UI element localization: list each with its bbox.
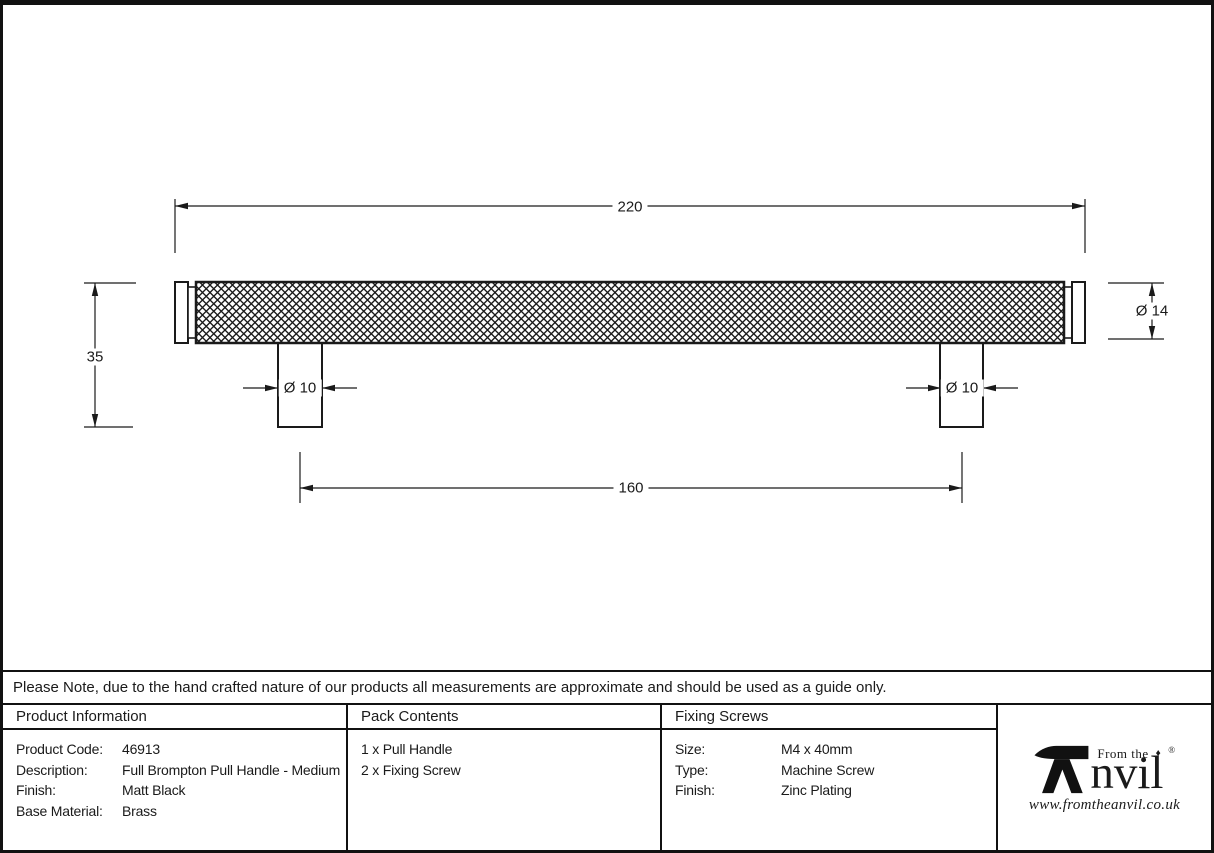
- pack-contents-header: Pack Contents: [348, 705, 662, 730]
- fixing-screws-body: Size: M4 x 40mm Type: Machine Screw Fini…: [662, 730, 998, 850]
- dim-label-projection-height: 35: [82, 349, 109, 366]
- from-the-anvil-logo: From the ♦ ® nvil www.fromtheanvil.co.uk: [1029, 736, 1180, 814]
- logo-wordmark: nvil: [1090, 752, 1163, 796]
- dim-label-bar-diameter: Ø 14: [1131, 303, 1174, 320]
- logo-website: www.fromtheanvil.co.uk: [1029, 797, 1180, 814]
- dimension-lines: [84, 199, 1164, 503]
- product-spec-sheet: 220 35 Ø 14 Ø 10 Ø 10 160 Please Note, d…: [0, 0, 1214, 853]
- table-row: Size: M4 x 40mm: [675, 739, 996, 760]
- technical-drawing: [0, 0, 1214, 672]
- product-information-header: Product Information: [3, 705, 348, 730]
- pull-handle-outline: [175, 282, 1085, 427]
- product-information-body: Product Code: 46913 Description: Full Br…: [3, 730, 348, 850]
- fixing-screws-header: Fixing Screws: [662, 705, 998, 730]
- note-text: Please Note, due to the hand crafted nat…: [13, 679, 887, 696]
- pack-contents-body: 1 x Pull Handle 2 x Fixing Screw: [348, 730, 662, 850]
- brand-logo-cell: From the ♦ ® nvil www.fromtheanvil.co.uk: [998, 705, 1211, 850]
- table-row: Type: Machine Screw: [675, 760, 996, 781]
- table-row: Finish: Matt Black: [16, 780, 346, 801]
- table-row: Product Code: 46913: [16, 739, 346, 760]
- table-row: Finish: Zinc Plating: [675, 780, 996, 801]
- measurement-note: Please Note, due to the hand crafted nat…: [0, 670, 1214, 705]
- knurled-bar: [196, 282, 1064, 343]
- anvil-icon: [1033, 743, 1090, 796]
- list-item: 2 x Fixing Screw: [361, 760, 660, 781]
- table-row: Base Material: Brass: [16, 801, 346, 822]
- dimension-arrowheads: [92, 203, 1155, 491]
- list-item: 1 x Pull Handle: [361, 739, 660, 760]
- spec-table: Product Information Pack Contents Fixing…: [3, 705, 1211, 850]
- left-end-cap: [175, 282, 188, 343]
- dim-label-overall-length: 220: [612, 199, 647, 216]
- registered-mark: ®: [1168, 745, 1175, 755]
- dim-label-fixing-centres: 160: [613, 480, 648, 497]
- right-end-cap: [1072, 282, 1085, 343]
- table-row: Description: Full Brompton Pull Handle -…: [16, 760, 346, 781]
- dim-label-leg-diameter-right: Ø 10: [941, 380, 984, 397]
- dim-label-leg-diameter-left: Ø 10: [279, 380, 322, 397]
